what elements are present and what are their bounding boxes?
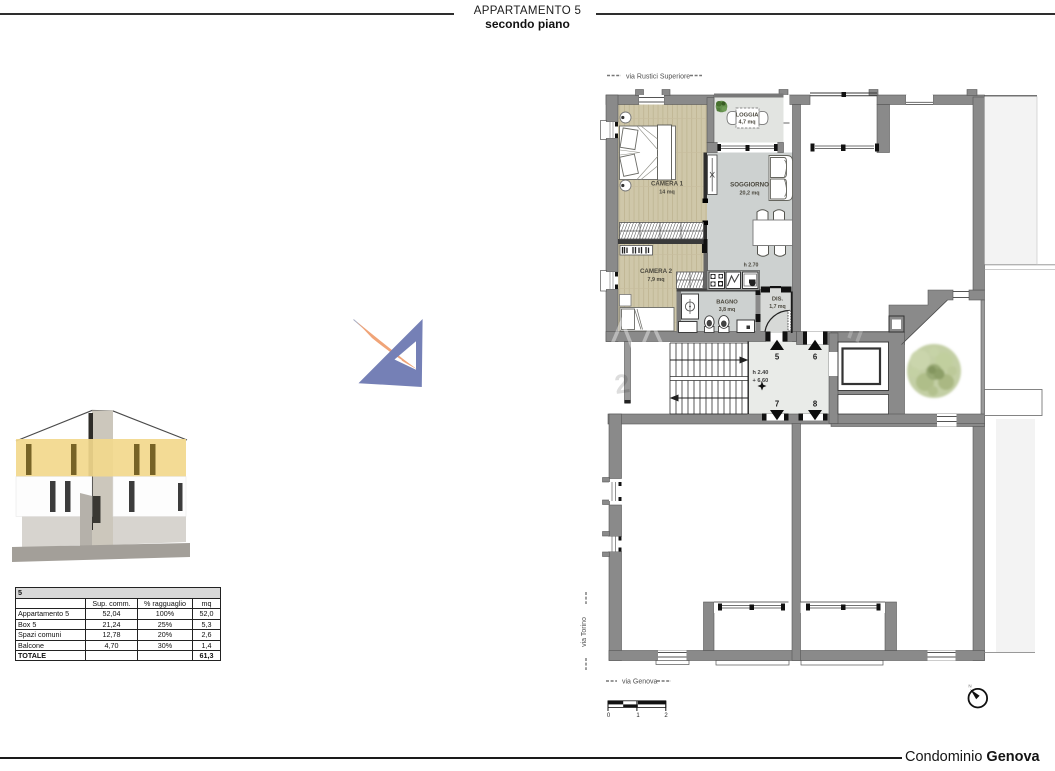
svg-text:20,2 mq: 20,2 mq [739, 191, 759, 197]
svg-text:h 2.70: h 2.70 [744, 263, 759, 269]
svg-text:0: 0 [607, 713, 611, 719]
svg-text:CAMERA 2: CAMERA 2 [640, 268, 673, 275]
svg-text:1,7 mq: 1,7 mq [769, 304, 785, 310]
svg-text:via Rustici Superiore: via Rustici Superiore [626, 74, 690, 81]
svg-text:5: 5 [775, 353, 780, 362]
svg-text:h 2.40: h 2.40 [753, 370, 769, 376]
svg-text:7,9 mq: 7,9 mq [647, 277, 664, 283]
svg-text:LOGGIA: LOGGIA [736, 113, 760, 119]
svg-text:8: 8 [813, 400, 818, 409]
svg-text:7: 7 [775, 400, 779, 409]
svg-text:BAGNO: BAGNO [716, 300, 738, 306]
svg-text:DIS.: DIS. [772, 297, 784, 303]
svg-text:6: 6 [813, 353, 818, 362]
svg-text:SOGGIORNO: SOGGIORNO [730, 182, 769, 189]
svg-text:2: 2 [664, 713, 668, 719]
svg-text:N: N [968, 684, 971, 689]
svg-text:14 mq: 14 mq [659, 190, 675, 196]
svg-text:4,7 mq: 4,7 mq [738, 120, 755, 126]
svg-text:via Torino: via Torino [581, 617, 588, 647]
svg-text:3,8 mq: 3,8 mq [719, 307, 735, 313]
svg-text:+ 6,60: + 6,60 [753, 378, 769, 384]
svg-text:1: 1 [636, 713, 640, 719]
svg-text:via Genova: via Genova [622, 679, 658, 686]
svg-text:CAMERA 1: CAMERA 1 [651, 181, 684, 188]
